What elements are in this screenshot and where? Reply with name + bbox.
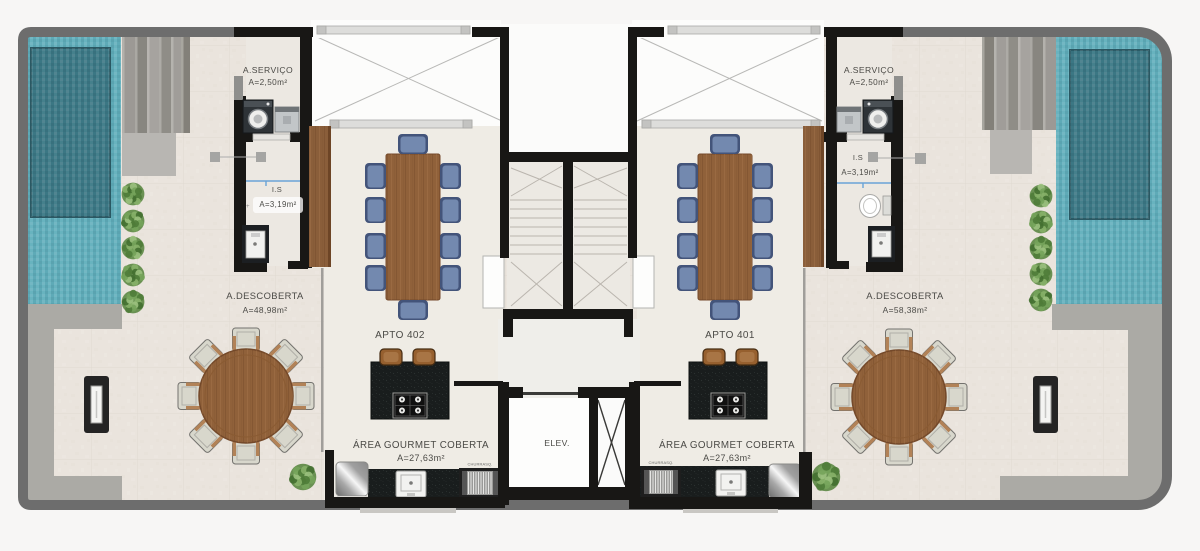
svg-text:A.SERVIÇO: A.SERVIÇO xyxy=(844,65,894,75)
svg-text:A.DESCOBERTA: A.DESCOBERTA xyxy=(226,290,304,301)
svg-text:A=27,63m²: A=27,63m² xyxy=(397,453,445,463)
svg-text:I.S: I.S xyxy=(272,185,282,194)
svg-text:CHURRASQ.: CHURRASQ. xyxy=(468,462,493,467)
svg-text:CHURRASQ.: CHURRASQ. xyxy=(649,460,674,465)
svg-text:ELEV.: ELEV. xyxy=(544,438,570,448)
svg-text:ÁREA GOURMET COBERTA: ÁREA GOURMET COBERTA xyxy=(659,440,795,451)
svg-text:A=58,38m²: A=58,38m² xyxy=(883,305,928,315)
svg-text:A.DESCOBERTA: A.DESCOBERTA xyxy=(866,290,944,301)
svg-text:ÁREA GOURMET COBERTA: ÁREA GOURMET COBERTA xyxy=(353,440,489,451)
svg-text:A.SERVIÇO: A.SERVIÇO xyxy=(243,65,293,75)
svg-text:I.S: I.S xyxy=(853,153,863,162)
svg-text:A=3,19m²: A=3,19m² xyxy=(259,200,296,209)
svg-text:APTO 402: APTO 402 xyxy=(375,330,425,341)
svg-text:A=27,63m²: A=27,63m² xyxy=(703,453,751,463)
svg-text:A=48,98m²: A=48,98m² xyxy=(243,305,288,315)
svg-text:+: + xyxy=(246,204,250,210)
svg-text:APTO 401: APTO 401 xyxy=(705,330,755,341)
svg-text:A=3,19m²: A=3,19m² xyxy=(841,168,878,177)
svg-text:A=2,50m²: A=2,50m² xyxy=(249,78,288,87)
svg-text:A=2,50m²: A=2,50m² xyxy=(850,78,889,87)
